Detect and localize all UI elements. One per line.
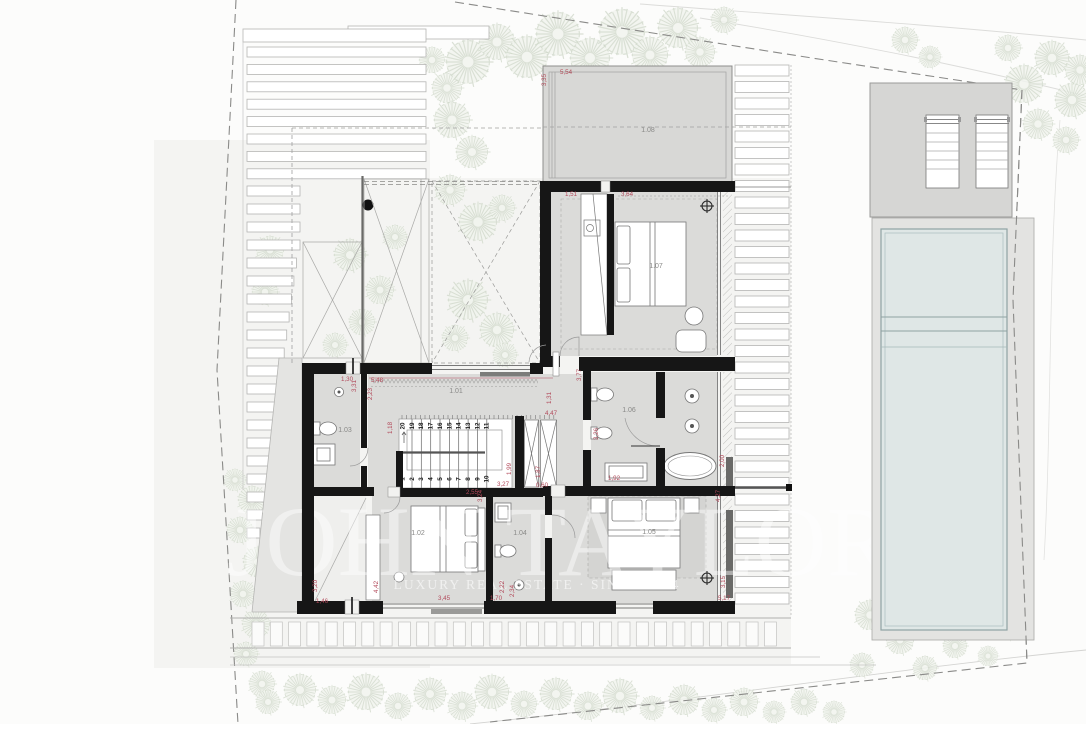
svg-text:1.02: 1.02 [411,530,425,537]
svg-text:1,70: 1,70 [490,595,503,602]
svg-text:18: 18 [418,422,425,430]
svg-text:1.07: 1.07 [649,263,663,270]
svg-text:3,31: 3,31 [351,379,358,392]
svg-text:9: 9 [474,477,481,481]
svg-text:1.01: 1.01 [449,388,463,395]
svg-text:3,20: 3,20 [312,579,319,592]
svg-text:14: 14 [456,422,463,430]
svg-text:3,26: 3,26 [593,427,600,440]
svg-text:1,31: 1,31 [546,391,553,404]
svg-text:3,27: 3,27 [497,481,510,488]
svg-text:1,87: 1,87 [535,465,542,478]
svg-text:10: 10 [484,475,491,483]
svg-text:6: 6 [446,477,453,481]
svg-text:1,99: 1,99 [506,462,513,475]
svg-text:4,47: 4,47 [545,410,558,417]
svg-text:1,46: 1,46 [316,598,329,605]
svg-text:5: 5 [437,477,444,481]
svg-text:19: 19 [409,422,416,430]
svg-text:5,17: 5,17 [718,595,731,602]
svg-text:1,51: 1,51 [565,191,578,198]
svg-text:8: 8 [465,477,472,481]
svg-text:0,60: 0,60 [536,482,549,489]
svg-text:1.08: 1.08 [641,127,655,134]
svg-text:1.04: 1.04 [513,530,527,537]
svg-text:1,92: 1,92 [608,475,621,482]
svg-text:2,23: 2,23 [367,387,374,400]
svg-text:2,34: 2,34 [509,584,516,597]
svg-text:1.05: 1.05 [642,529,656,536]
svg-text:5,54: 5,54 [560,69,573,76]
svg-text:3,64: 3,64 [621,191,634,198]
svg-text:15: 15 [446,422,453,430]
svg-text:1,18: 1,18 [387,421,394,434]
svg-text:3,35: 3,35 [541,73,548,86]
svg-text:13: 13 [465,422,472,430]
svg-text:1.06: 1.06 [622,407,636,414]
svg-text:2,00: 2,00 [719,454,726,467]
svg-text:3,45: 3,45 [438,595,451,602]
svg-text:2: 2 [409,477,416,481]
svg-text:4: 4 [428,477,435,481]
svg-text:2,22: 2,22 [499,580,506,593]
svg-text:LUXURY REAL ESTATE · SINCE 186: LUXURY REAL ESTATE · SINCE 1864 [394,577,681,592]
svg-text:3,24: 3,24 [477,489,484,502]
svg-text:1.03: 1.03 [338,427,352,434]
svg-text:20: 20 [400,422,407,430]
svg-text:11: 11 [484,422,491,429]
svg-text:4,27: 4,27 [715,489,722,502]
svg-text:3,77: 3,77 [576,368,583,381]
svg-text:12: 12 [474,422,481,430]
svg-text:3: 3 [418,477,425,481]
svg-text:4,42: 4,42 [373,580,380,593]
svg-text:3,15: 3,15 [720,575,727,588]
svg-text:7: 7 [456,477,463,481]
svg-text:16: 16 [437,422,444,430]
svg-text:17: 17 [428,422,435,430]
